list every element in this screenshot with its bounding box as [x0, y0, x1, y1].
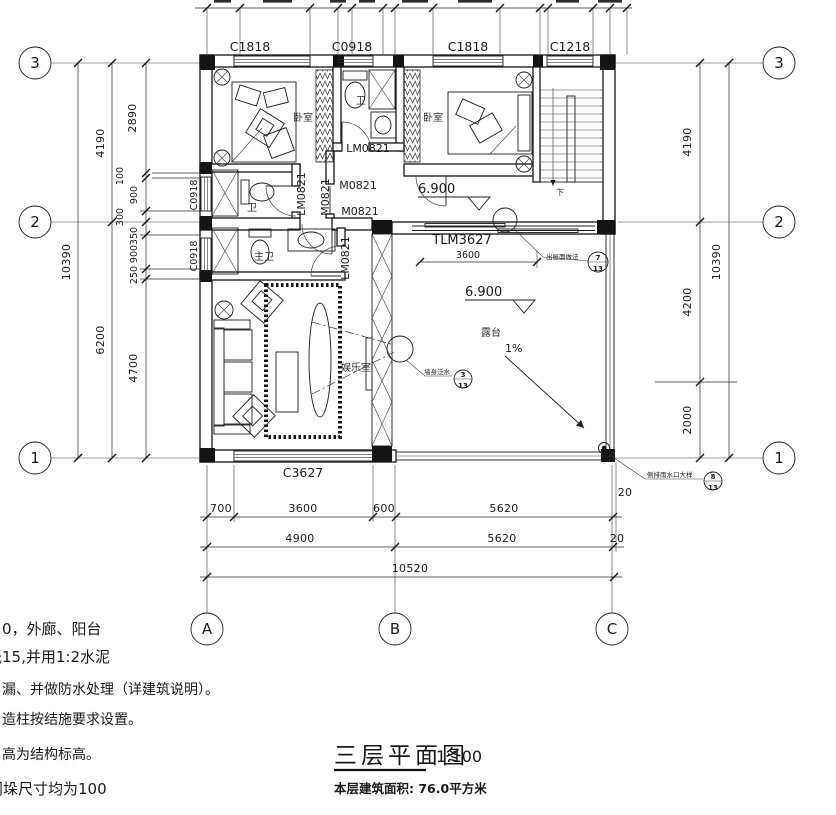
dim-text: 10390: [60, 244, 73, 281]
dimensions-left: 10390 4190 6200 2890 100 900 300 350 900…: [60, 59, 200, 462]
master-bath-fixtures: [212, 228, 335, 274]
bath-top-fixtures: [343, 70, 396, 138]
bath-mid-fixtures: [212, 170, 274, 216]
window-label: C0918: [332, 39, 373, 54]
wardrobe-icon: [404, 70, 420, 162]
note-line: 漏、并做防水处理（详建筑说明）。: [2, 682, 219, 698]
callout-label: 出屋面做法: [546, 252, 579, 261]
grid-label: 1: [774, 449, 784, 467]
rec-room-furniture: [214, 281, 394, 437]
dim-text: 4200: [681, 287, 694, 316]
dim-text: 250: [129, 266, 140, 284]
drawing-scale: 1:100: [436, 747, 482, 766]
bedroom-left-furniture: [214, 69, 333, 166]
dim-text: 10390: [710, 244, 723, 281]
level-mark-terrace: 6.900: [465, 285, 535, 313]
callout-roof-access: 出屋面做法 7 13: [493, 208, 608, 273]
dim-text: 20: [610, 532, 625, 545]
dim-text: 3600: [288, 502, 317, 515]
door-label: LM0821: [346, 142, 390, 155]
armchair-icon: [233, 395, 275, 437]
grid-label: 1: [30, 449, 40, 467]
door-label: TLM3627: [431, 233, 491, 248]
window-label: C0918: [189, 241, 200, 272]
level-text: 6.900: [418, 182, 455, 197]
dim-text: 4900: [285, 532, 314, 545]
dim-text: 4700: [127, 353, 140, 382]
slope-label: 1%: [505, 342, 522, 355]
door-label: LM0821: [339, 236, 352, 280]
level-text: 6.900: [465, 285, 502, 300]
dim-text: 350: [129, 227, 140, 245]
dim-text: 100: [115, 167, 126, 185]
window-label: C1218: [550, 39, 591, 54]
callout-wall-flashing: 墙身泛水 3 13: [387, 336, 472, 390]
note-line: 造柱按结施要求设置。: [2, 712, 142, 728]
door-label: M0821: [319, 178, 332, 216]
note-line: 低15,并用1:2水泥: [0, 648, 110, 666]
grid-label: B: [390, 620, 400, 638]
window-label: C1818: [448, 39, 489, 54]
grid-label: A: [202, 620, 213, 638]
dim-text: 4190: [94, 128, 107, 157]
room-label: 露台: [481, 326, 501, 339]
room-label: 卧室: [293, 111, 313, 124]
dimensions-right: 4190 10390 4200 2000: [655, 59, 737, 462]
window-label: C3627: [283, 465, 324, 480]
wardrobe-icon: [316, 70, 333, 162]
grid-label: 3: [30, 54, 40, 72]
callout-number: 8: [711, 473, 716, 481]
coffee-table-icon: [276, 352, 298, 412]
dim-text: 600: [373, 502, 395, 515]
note-line: 0，外廊、阳台: [2, 620, 102, 638]
dim-text: 4190: [681, 127, 694, 156]
dim-text: 300: [115, 208, 126, 226]
room-label: 卫: [247, 203, 257, 214]
armchair-icon: [241, 281, 283, 323]
dim-text: 10520: [392, 562, 429, 575]
grid-label: 2: [774, 213, 784, 231]
toilet-icon: [241, 180, 249, 204]
room-label: 主卫: [254, 251, 274, 263]
grid-label: 3: [774, 54, 784, 72]
dim-text: 2890: [126, 103, 139, 132]
note-line: 门垛尺寸均为100: [0, 780, 107, 798]
dim-text: 3600: [456, 250, 480, 261]
callout-label: 墙身泛水: [424, 367, 451, 376]
room-label: 娱乐室: [341, 361, 371, 374]
callout-sheet: 13: [458, 382, 468, 390]
floor-plan-drawing: 3 2 1 3 2 1 A B C 10390 4190 6200 2890 1…: [0, 0, 836, 815]
callout-sheet: 13: [708, 484, 718, 492]
dim-text: 6200: [94, 325, 107, 354]
floor-plan-sheet: 3 2 1 3 2 1 A B C 10390 4190 6200 2890 1…: [0, 0, 836, 815]
dim-text: 700: [210, 502, 232, 515]
room-label: 卫: [356, 96, 366, 107]
dim-text: 5620: [487, 532, 516, 545]
dim-text: 20: [618, 486, 633, 499]
door-label: M0821: [339, 179, 377, 192]
door-label: M0821: [341, 205, 379, 218]
window-label: C0918: [189, 180, 200, 211]
window-label: C1818: [230, 39, 271, 54]
grid-label: 2: [30, 213, 40, 231]
dimensions-bottom: 700 3600 600 5620 20 4900 5620 20 10520 …: [200, 462, 632, 581]
callout-sheet: 13: [593, 265, 603, 273]
staircase: 下: [540, 67, 603, 197]
toilet-icon: [343, 71, 367, 80]
stair-down-label: 下: [556, 188, 564, 197]
dim-text: 900: [129, 186, 140, 204]
dim-text: 900: [129, 245, 140, 263]
title-block: 三层平面图 1:100 本层建筑面积: 76.0平方米: [334, 743, 487, 796]
callout-number: 7: [596, 254, 601, 262]
headboard: [518, 95, 530, 151]
stair-direction-arrow: [551, 180, 556, 186]
callout-number: 3: [461, 371, 466, 379]
grid-label: C: [607, 620, 617, 638]
callout-label: 侧排雨水口大样: [647, 470, 693, 479]
bed-icon: [448, 92, 532, 154]
general-notes: 0，外廊、阳台 低15,并用1:2水泥 漏、并做防水处理（详建筑说明）。 造柱按…: [0, 620, 219, 798]
note-line: 高为结构标高。: [2, 746, 100, 763]
braced-wall-strip: [366, 234, 392, 446]
dim-text: 5620: [489, 502, 518, 515]
level-mark-hall: 6.900: [418, 182, 490, 210]
area-note: 本层建筑面积: 76.0平方米: [334, 781, 487, 796]
room-label: 卧室: [423, 111, 443, 124]
dim-text: 2000: [681, 405, 694, 434]
door-label: LM0821: [295, 172, 308, 216]
